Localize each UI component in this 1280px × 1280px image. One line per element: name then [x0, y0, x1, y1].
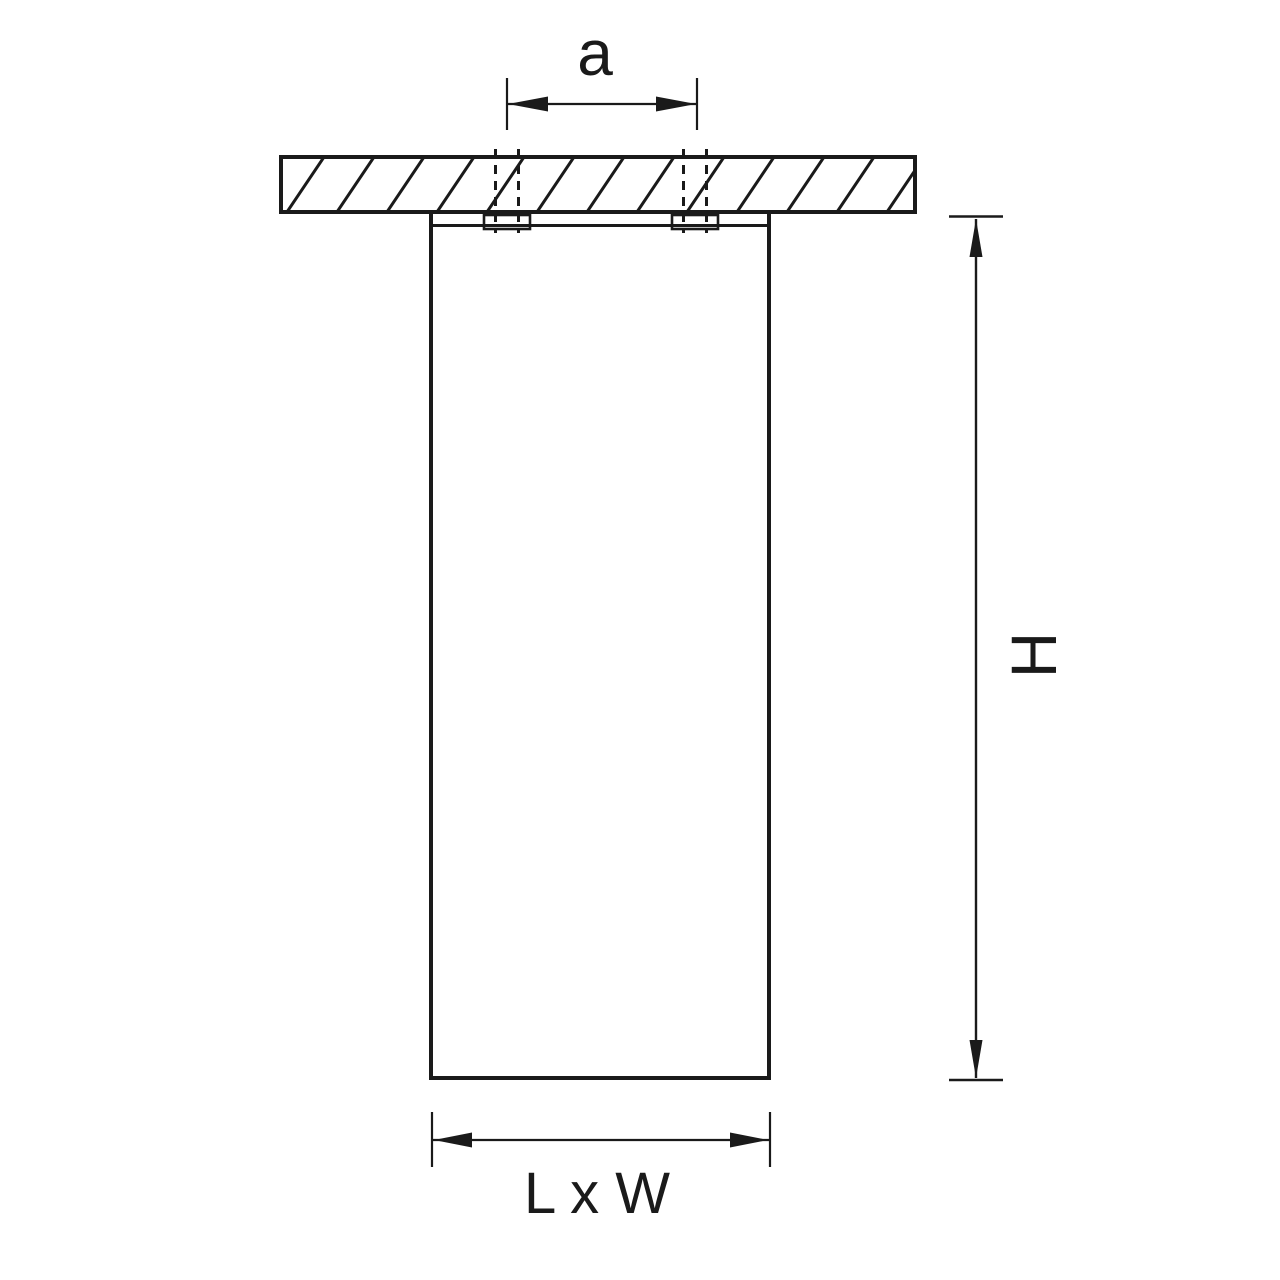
- dimension-base: L x W: [432, 1112, 770, 1226]
- fixture-body: [431, 212, 769, 1078]
- arrowhead-left-icon: [508, 97, 548, 112]
- arrowhead-right-icon: [656, 97, 696, 112]
- dimension-h-label: H: [998, 632, 1070, 678]
- dimension-lxw-label: L x W: [524, 1161, 670, 1226]
- ceiling-section-hatch: [281, 157, 915, 212]
- drawing-canvas: a H L x W: [0, 0, 1280, 1280]
- dimension-height: H: [949, 217, 1070, 1081]
- arrowhead-down-icon: [970, 1040, 983, 1078]
- arrowhead-right-icon: [730, 1133, 768, 1148]
- ceiling-panel: [281, 157, 915, 212]
- arrowhead-left-icon: [434, 1133, 472, 1148]
- fixture-body-outline: [431, 212, 769, 1078]
- arrowhead-up-icon: [970, 219, 983, 257]
- dimension-a-label: a: [577, 17, 613, 89]
- dimension-hole-spacing: a: [507, 17, 697, 130]
- fixture-dimension-diagram: a H L x W: [0, 0, 1280, 1280]
